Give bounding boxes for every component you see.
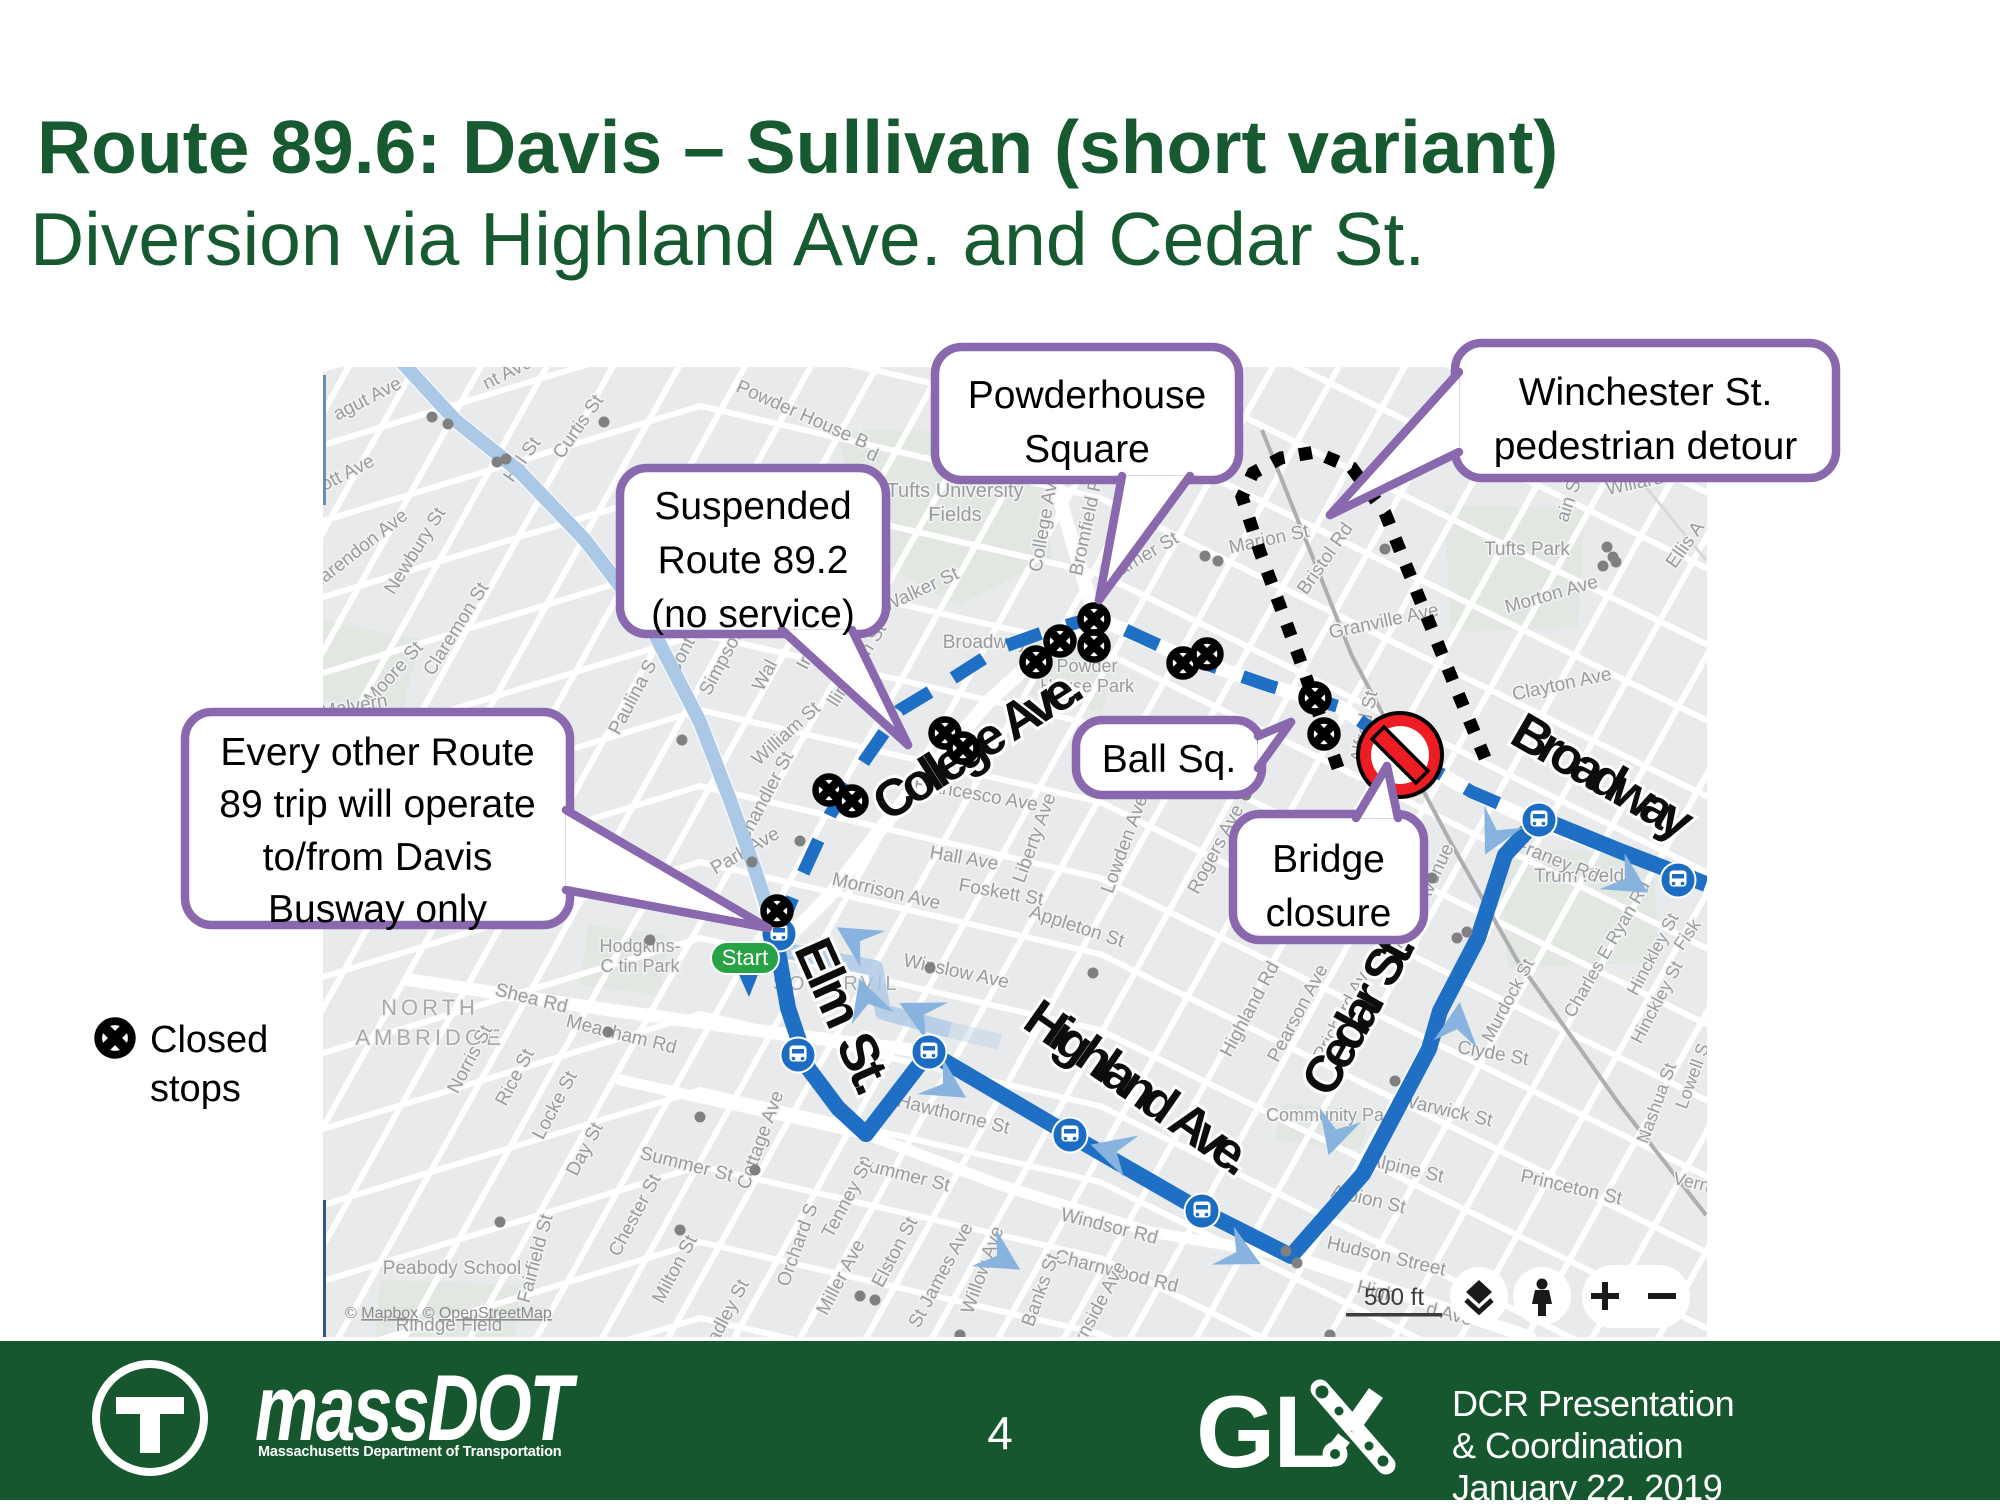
svg-text:Hodgkins-: Hodgkins- bbox=[599, 936, 680, 956]
svg-text:C tin Park: C tin Park bbox=[600, 956, 680, 976]
svg-text:Busway only: Busway only bbox=[268, 888, 487, 931]
svg-text:Square: Square bbox=[1024, 428, 1150, 471]
svg-text:Ball Sq.: Ball Sq. bbox=[1102, 738, 1236, 781]
svg-text:Powderhouse: Powderhouse bbox=[968, 374, 1207, 417]
svg-text:stops: stops bbox=[150, 1068, 241, 1110]
svg-text:pedestrian detour: pedestrian detour bbox=[1494, 425, 1798, 468]
svg-text:Route 89.2: Route 89.2 bbox=[658, 539, 849, 582]
svg-text:Suspended: Suspended bbox=[654, 485, 851, 528]
svg-text:NORTH: NORTH bbox=[381, 995, 479, 1020]
svg-text:© Mapbox © OpenStreetMap: © Mapbox © OpenStreetMap bbox=[345, 1305, 552, 1322]
svg-text:closure: closure bbox=[1266, 892, 1392, 935]
svg-text:Peabody School: Peabody School bbox=[383, 1258, 521, 1279]
svg-text:(no service): (no service) bbox=[651, 593, 855, 636]
svg-text:Closed: Closed bbox=[150, 1019, 268, 1061]
svg-text:Winchester St.: Winchester St. bbox=[1519, 371, 1773, 414]
svg-text:89 trip will operate: 89 trip will operate bbox=[219, 783, 536, 826]
svg-text:Fields: Fields bbox=[928, 504, 981, 526]
svg-text:Tufts Park: Tufts Park bbox=[1484, 539, 1570, 560]
svg-text:Every other Route: Every other Route bbox=[220, 731, 534, 774]
svg-text:to/from Davis: to/from Davis bbox=[263, 836, 493, 879]
svg-text:Bridge: Bridge bbox=[1272, 838, 1385, 881]
svg-text:500 ft: 500 ft bbox=[1364, 1284, 1424, 1311]
svg-text:Start: Start bbox=[722, 945, 768, 970]
